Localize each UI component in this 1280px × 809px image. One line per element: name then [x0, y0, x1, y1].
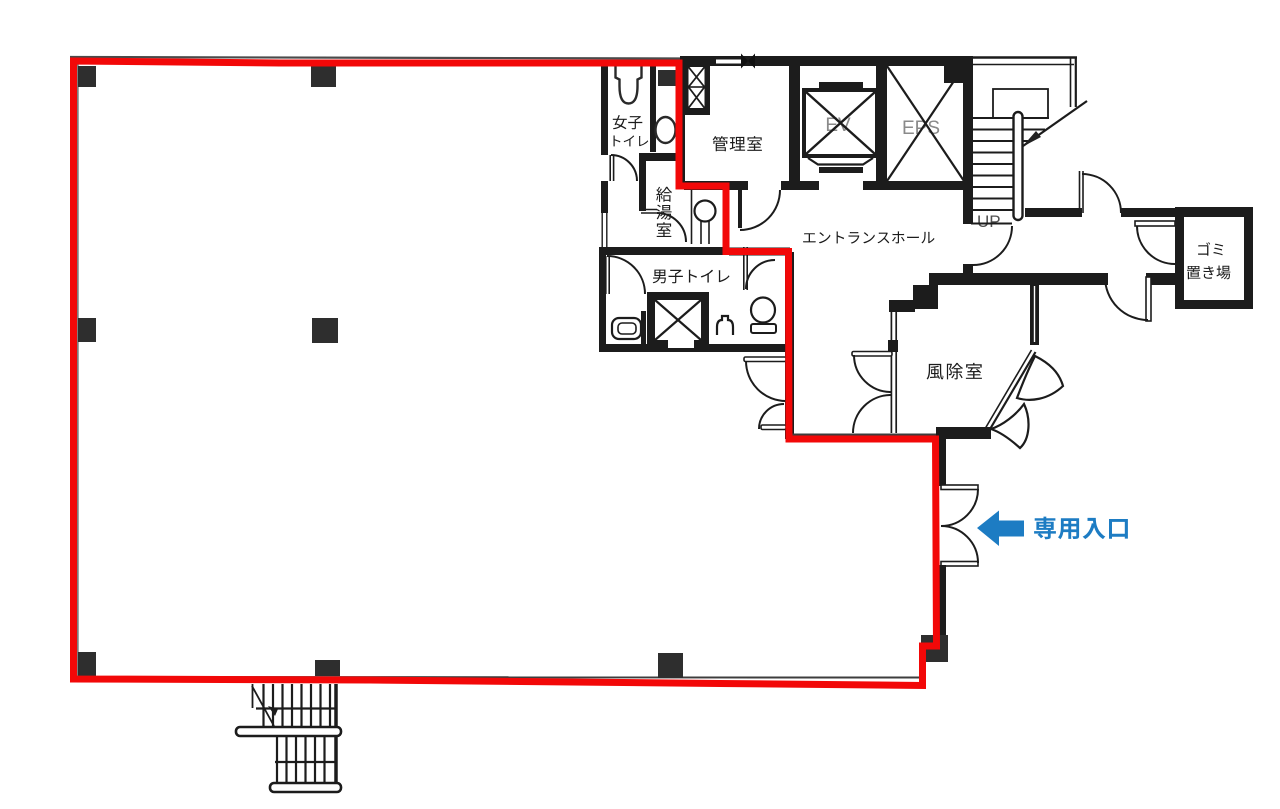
svg-text:UP: UP [977, 212, 1001, 231]
